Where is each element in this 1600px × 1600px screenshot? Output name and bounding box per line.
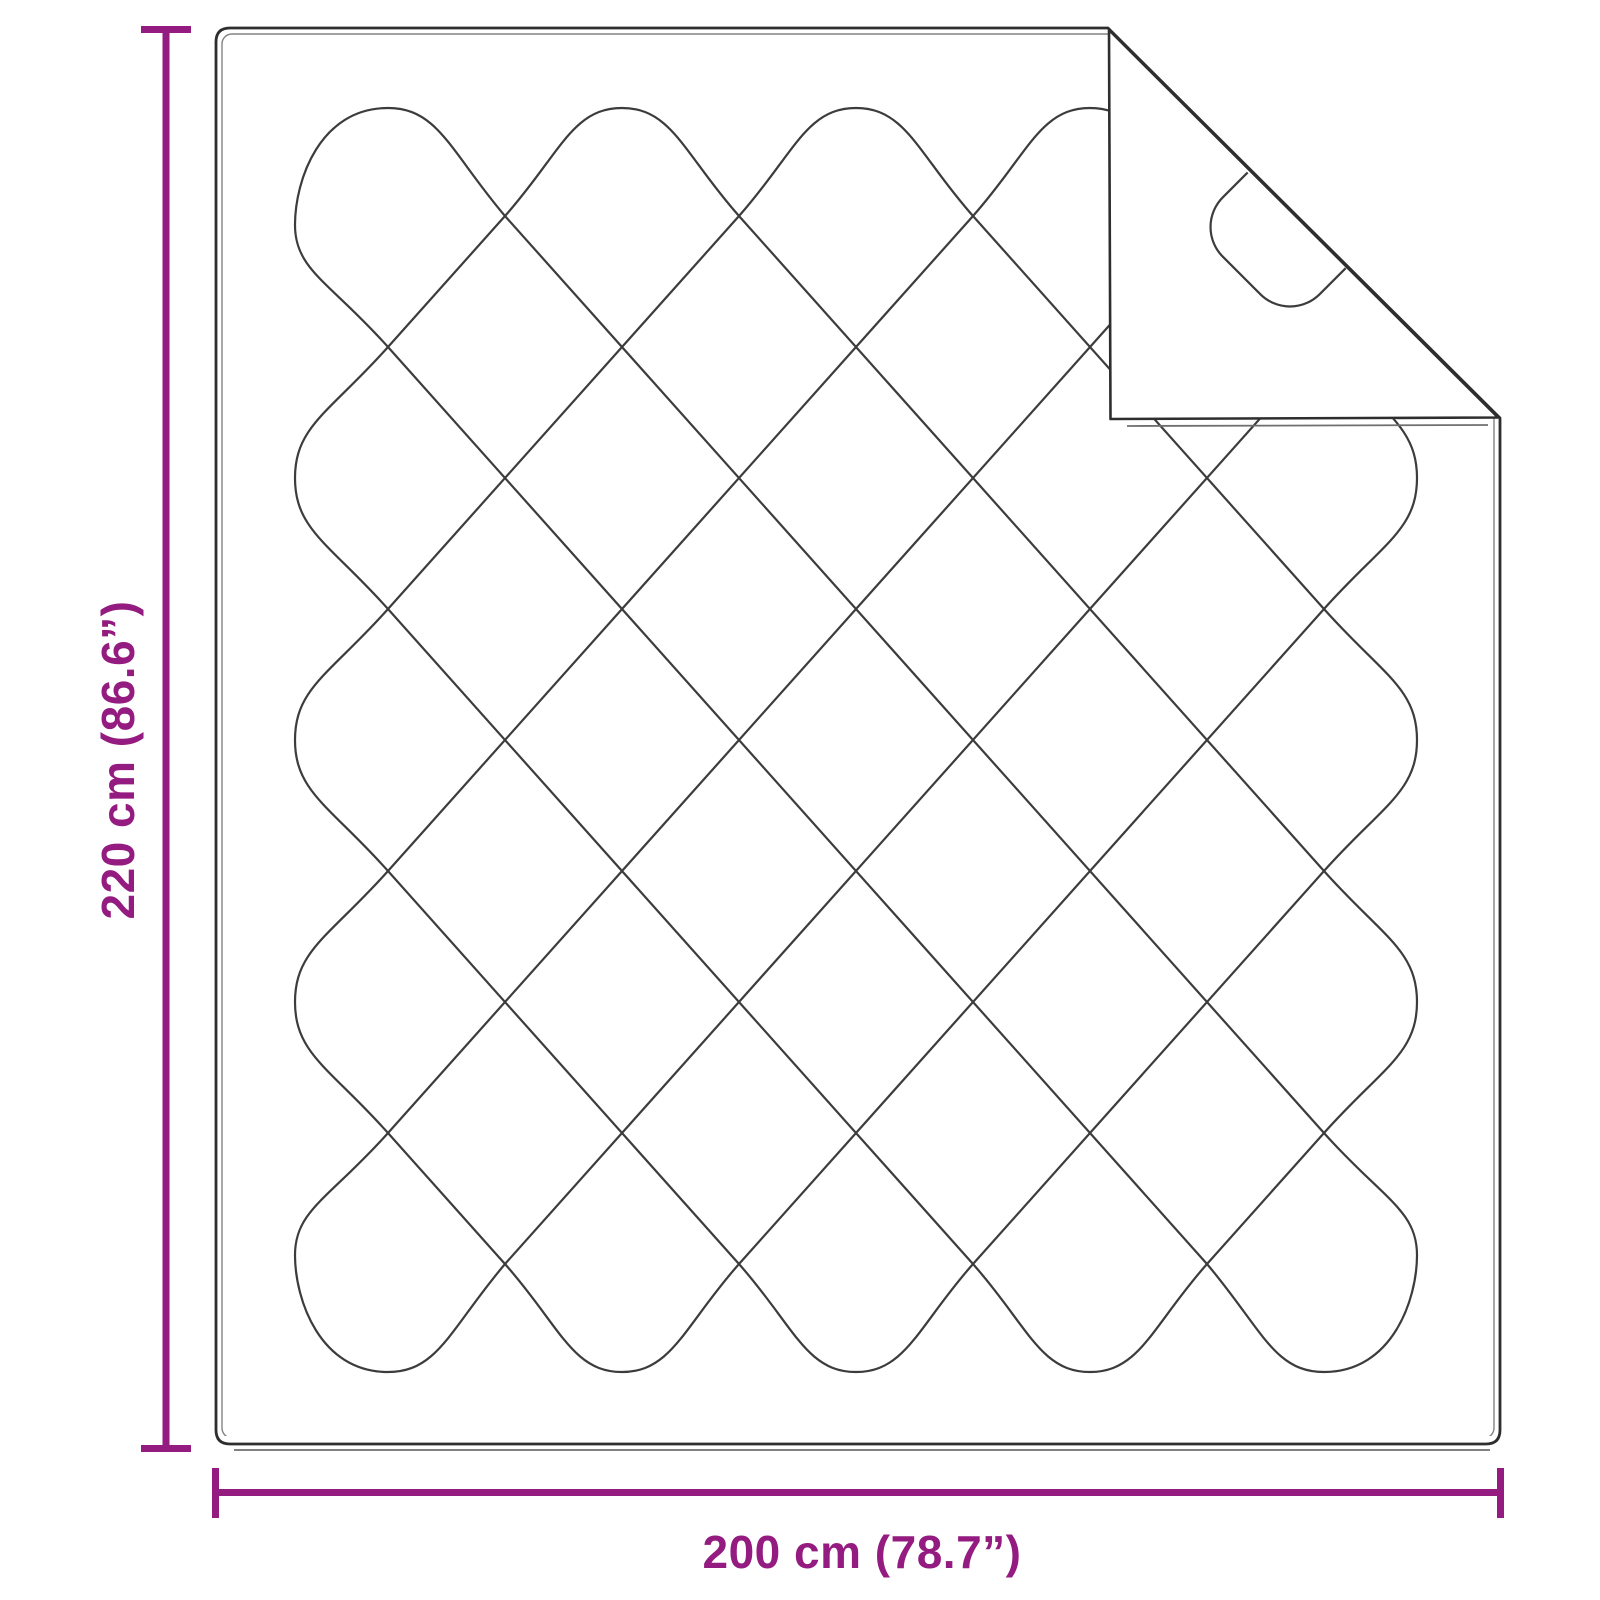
- fold-flap-group: [1109, 30, 1498, 426]
- quilt-boundary-cap: [1324, 609, 1417, 871]
- quilt-line: [973, 871, 1324, 1264]
- quilt-boundary-cap: [973, 1264, 1207, 1372]
- flap-shadow-line: [1127, 425, 1488, 426]
- dimension-vertical: 220 cm (86.6”): [92, 26, 191, 1452]
- dimension-horizontal: 200 cm (78.7”): [212, 1468, 1504, 1578]
- quilt-boundary-cap: [295, 609, 388, 871]
- quilt-line: [1207, 1133, 1324, 1264]
- quilt-boundary-cap: [739, 1264, 973, 1372]
- dimension-line-vertical: [163, 27, 170, 1451]
- dimension-cap-top: [141, 26, 191, 33]
- quilt-line: [388, 216, 505, 347]
- quilt-boundary-cap: [505, 108, 739, 216]
- quilt-boundary-cap: [295, 871, 388, 1133]
- quilt-boundary-cap: [505, 1264, 739, 1372]
- height-label: 220 cm (86.6”): [92, 601, 144, 920]
- quilt-line: [388, 609, 973, 1264]
- dimension-cap-right: [1497, 1468, 1504, 1518]
- dimension-line-horizontal: [215, 1489, 1501, 1496]
- quilt-line: [388, 216, 739, 609]
- fold-flap: [1109, 30, 1498, 419]
- product-dimension-diagram: 220 cm (86.6”) 200 cm (78.7”): [0, 0, 1600, 1600]
- dimension-cap-bottom: [141, 1445, 191, 1452]
- quilt-line: [388, 216, 973, 871]
- quilt-corner-cap: [295, 108, 505, 347]
- quilt-boundary-cap: [739, 108, 973, 216]
- quilt-corner-cap: [1207, 1133, 1417, 1372]
- quilt-line: [388, 347, 1207, 1264]
- quilt-corner-cap: [295, 1133, 505, 1372]
- quilt-line: [739, 609, 1324, 1264]
- quilt-boundary-cap: [1324, 871, 1417, 1133]
- quilt-line: [505, 292, 1373, 1264]
- quilt-line: [388, 871, 739, 1264]
- quilt-boundary-cap: [295, 347, 388, 609]
- diagram-canvas: 220 cm (86.6”) 200 cm (78.7”): [0, 0, 1600, 1600]
- width-label: 200 cm (78.7”): [703, 1526, 1022, 1578]
- quilt-line: [388, 1133, 505, 1264]
- dimension-cap-left: [212, 1468, 219, 1518]
